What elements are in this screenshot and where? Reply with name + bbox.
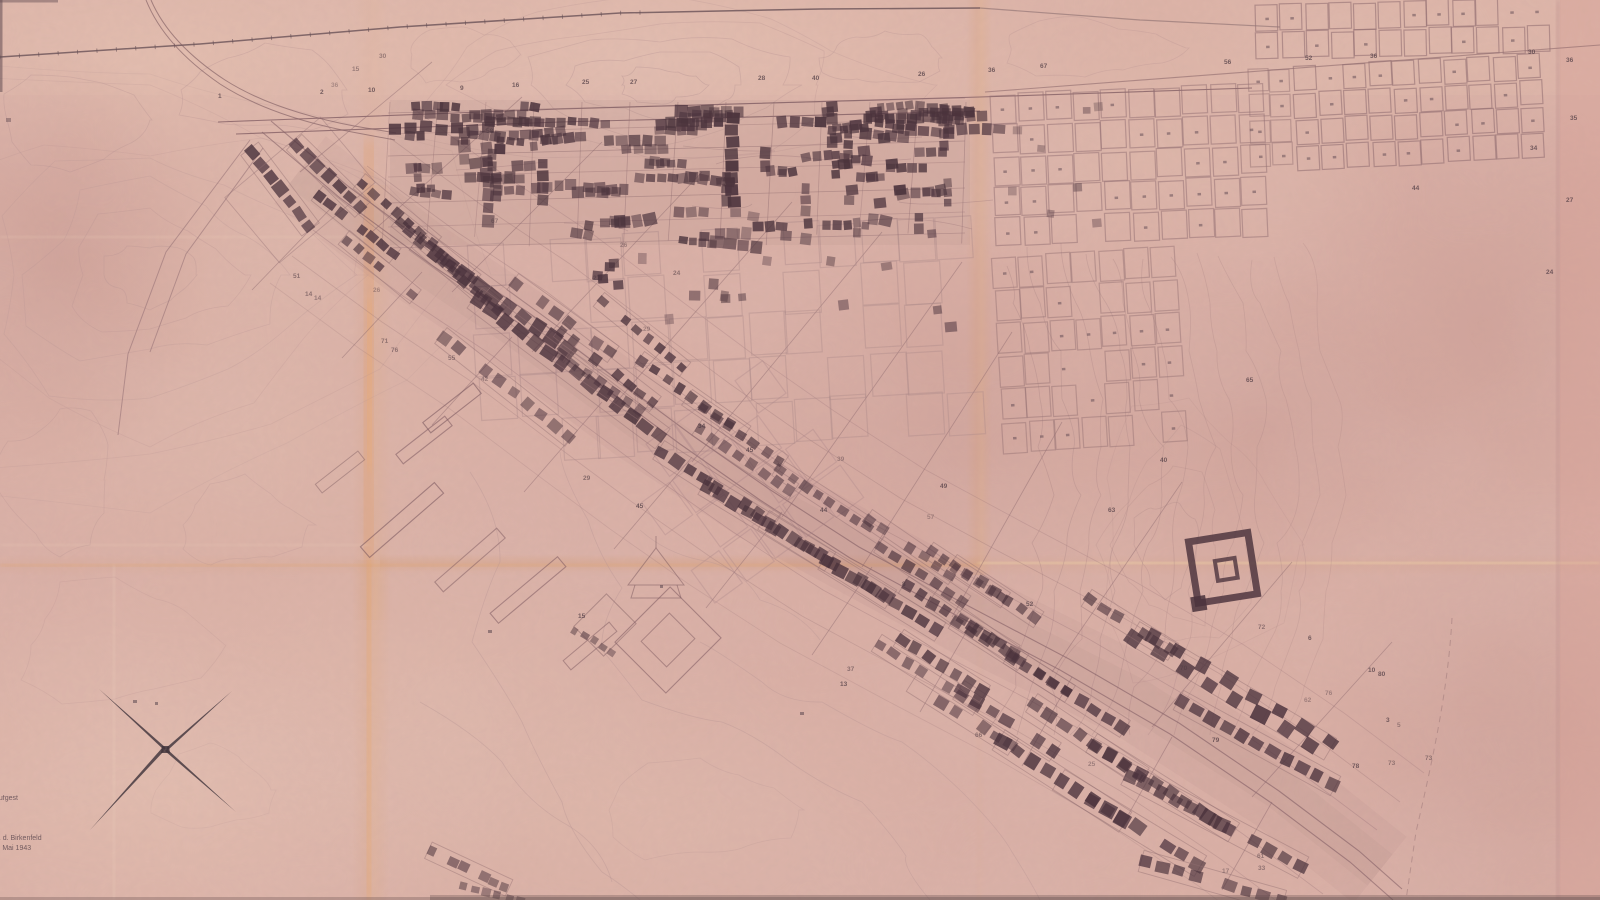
svg-text:33: 33 [1258,865,1266,872]
svg-text:61: 61 [1257,853,1265,860]
svg-text:29: 29 [583,475,591,482]
svg-text:67: 67 [1040,63,1048,70]
svg-text:76: 76 [1325,690,1333,697]
svg-text:im Mai 1943: im Mai 1943 [0,845,31,852]
svg-text:13: 13 [840,681,848,688]
svg-text:16: 16 [512,82,520,89]
svg-text:36: 36 [1370,53,1378,60]
svg-text:aufgest: aufgest [0,795,18,802]
svg-text:14: 14 [305,291,313,298]
svg-text:65: 65 [1246,377,1254,384]
svg-text:62: 62 [1304,697,1312,704]
svg-text:40: 40 [1160,457,1168,464]
svg-text:76: 76 [391,347,399,354]
svg-text:55: 55 [448,355,456,362]
svg-text:39: 39 [837,456,845,463]
svg-text:34: 34 [698,423,706,430]
svg-text:8: 8 [902,581,906,588]
svg-text:42: 42 [481,376,489,383]
svg-text:36: 36 [331,82,339,89]
svg-text:29: 29 [643,326,651,333]
svg-text:44: 44 [1412,185,1420,192]
svg-text:14: 14 [314,295,322,302]
svg-text:67: 67 [491,218,499,225]
svg-text:26: 26 [620,242,628,249]
svg-text:36: 36 [988,67,996,74]
svg-text:9: 9 [460,85,464,92]
svg-text:45: 45 [746,447,754,454]
svg-text:66: 66 [975,732,983,739]
svg-text:15: 15 [352,66,360,73]
svg-text:56: 56 [1224,59,1232,66]
svg-text:30: 30 [1528,49,1536,56]
svg-text:3: 3 [1386,717,1390,724]
svg-text:27: 27 [593,275,601,282]
svg-text:17: 17 [1222,868,1230,875]
svg-text:36: 36 [1566,57,1574,64]
svg-text:79: 79 [1212,737,1220,744]
svg-text:27: 27 [1566,197,1574,204]
svg-text:28: 28 [758,75,766,82]
svg-text:52: 52 [1305,55,1313,62]
svg-text:6: 6 [1308,635,1312,642]
svg-text:45: 45 [636,503,644,510]
svg-text:26: 26 [373,287,381,294]
svg-text:24: 24 [1546,269,1554,276]
svg-text:44: 44 [820,507,828,514]
svg-text:27: 27 [630,79,638,86]
svg-text:M. d. Birkenfeld: M. d. Birkenfeld [0,835,42,842]
svg-text:72: 72 [1258,624,1266,631]
svg-text:26: 26 [918,71,926,78]
svg-text:58: 58 [486,128,494,135]
svg-text:49: 49 [940,483,948,490]
svg-text:1: 1 [218,93,222,100]
svg-text:40: 40 [812,75,820,82]
svg-text:51: 51 [293,273,301,280]
svg-text:30: 30 [379,53,387,60]
svg-text:78: 78 [1352,763,1360,770]
svg-text:34: 34 [1530,145,1538,152]
svg-text:37: 37 [847,666,855,673]
svg-text:70: 70 [1180,665,1188,672]
svg-text:63: 63 [1108,507,1116,514]
svg-text:73: 73 [1388,760,1396,767]
svg-text:10: 10 [368,87,376,94]
svg-text:5: 5 [1397,722,1401,729]
svg-text:52: 52 [1026,601,1034,608]
svg-text:2: 2 [320,89,324,96]
svg-text:10: 10 [1368,667,1376,674]
svg-text:80: 80 [1378,671,1386,678]
svg-text:57: 57 [927,514,935,521]
svg-text:35: 35 [1570,115,1578,122]
svg-text:25: 25 [582,79,590,86]
svg-text:24: 24 [673,270,681,277]
svg-text:15: 15 [578,613,586,620]
svg-text:25: 25 [1088,761,1096,768]
svg-text:71: 71 [381,338,389,345]
